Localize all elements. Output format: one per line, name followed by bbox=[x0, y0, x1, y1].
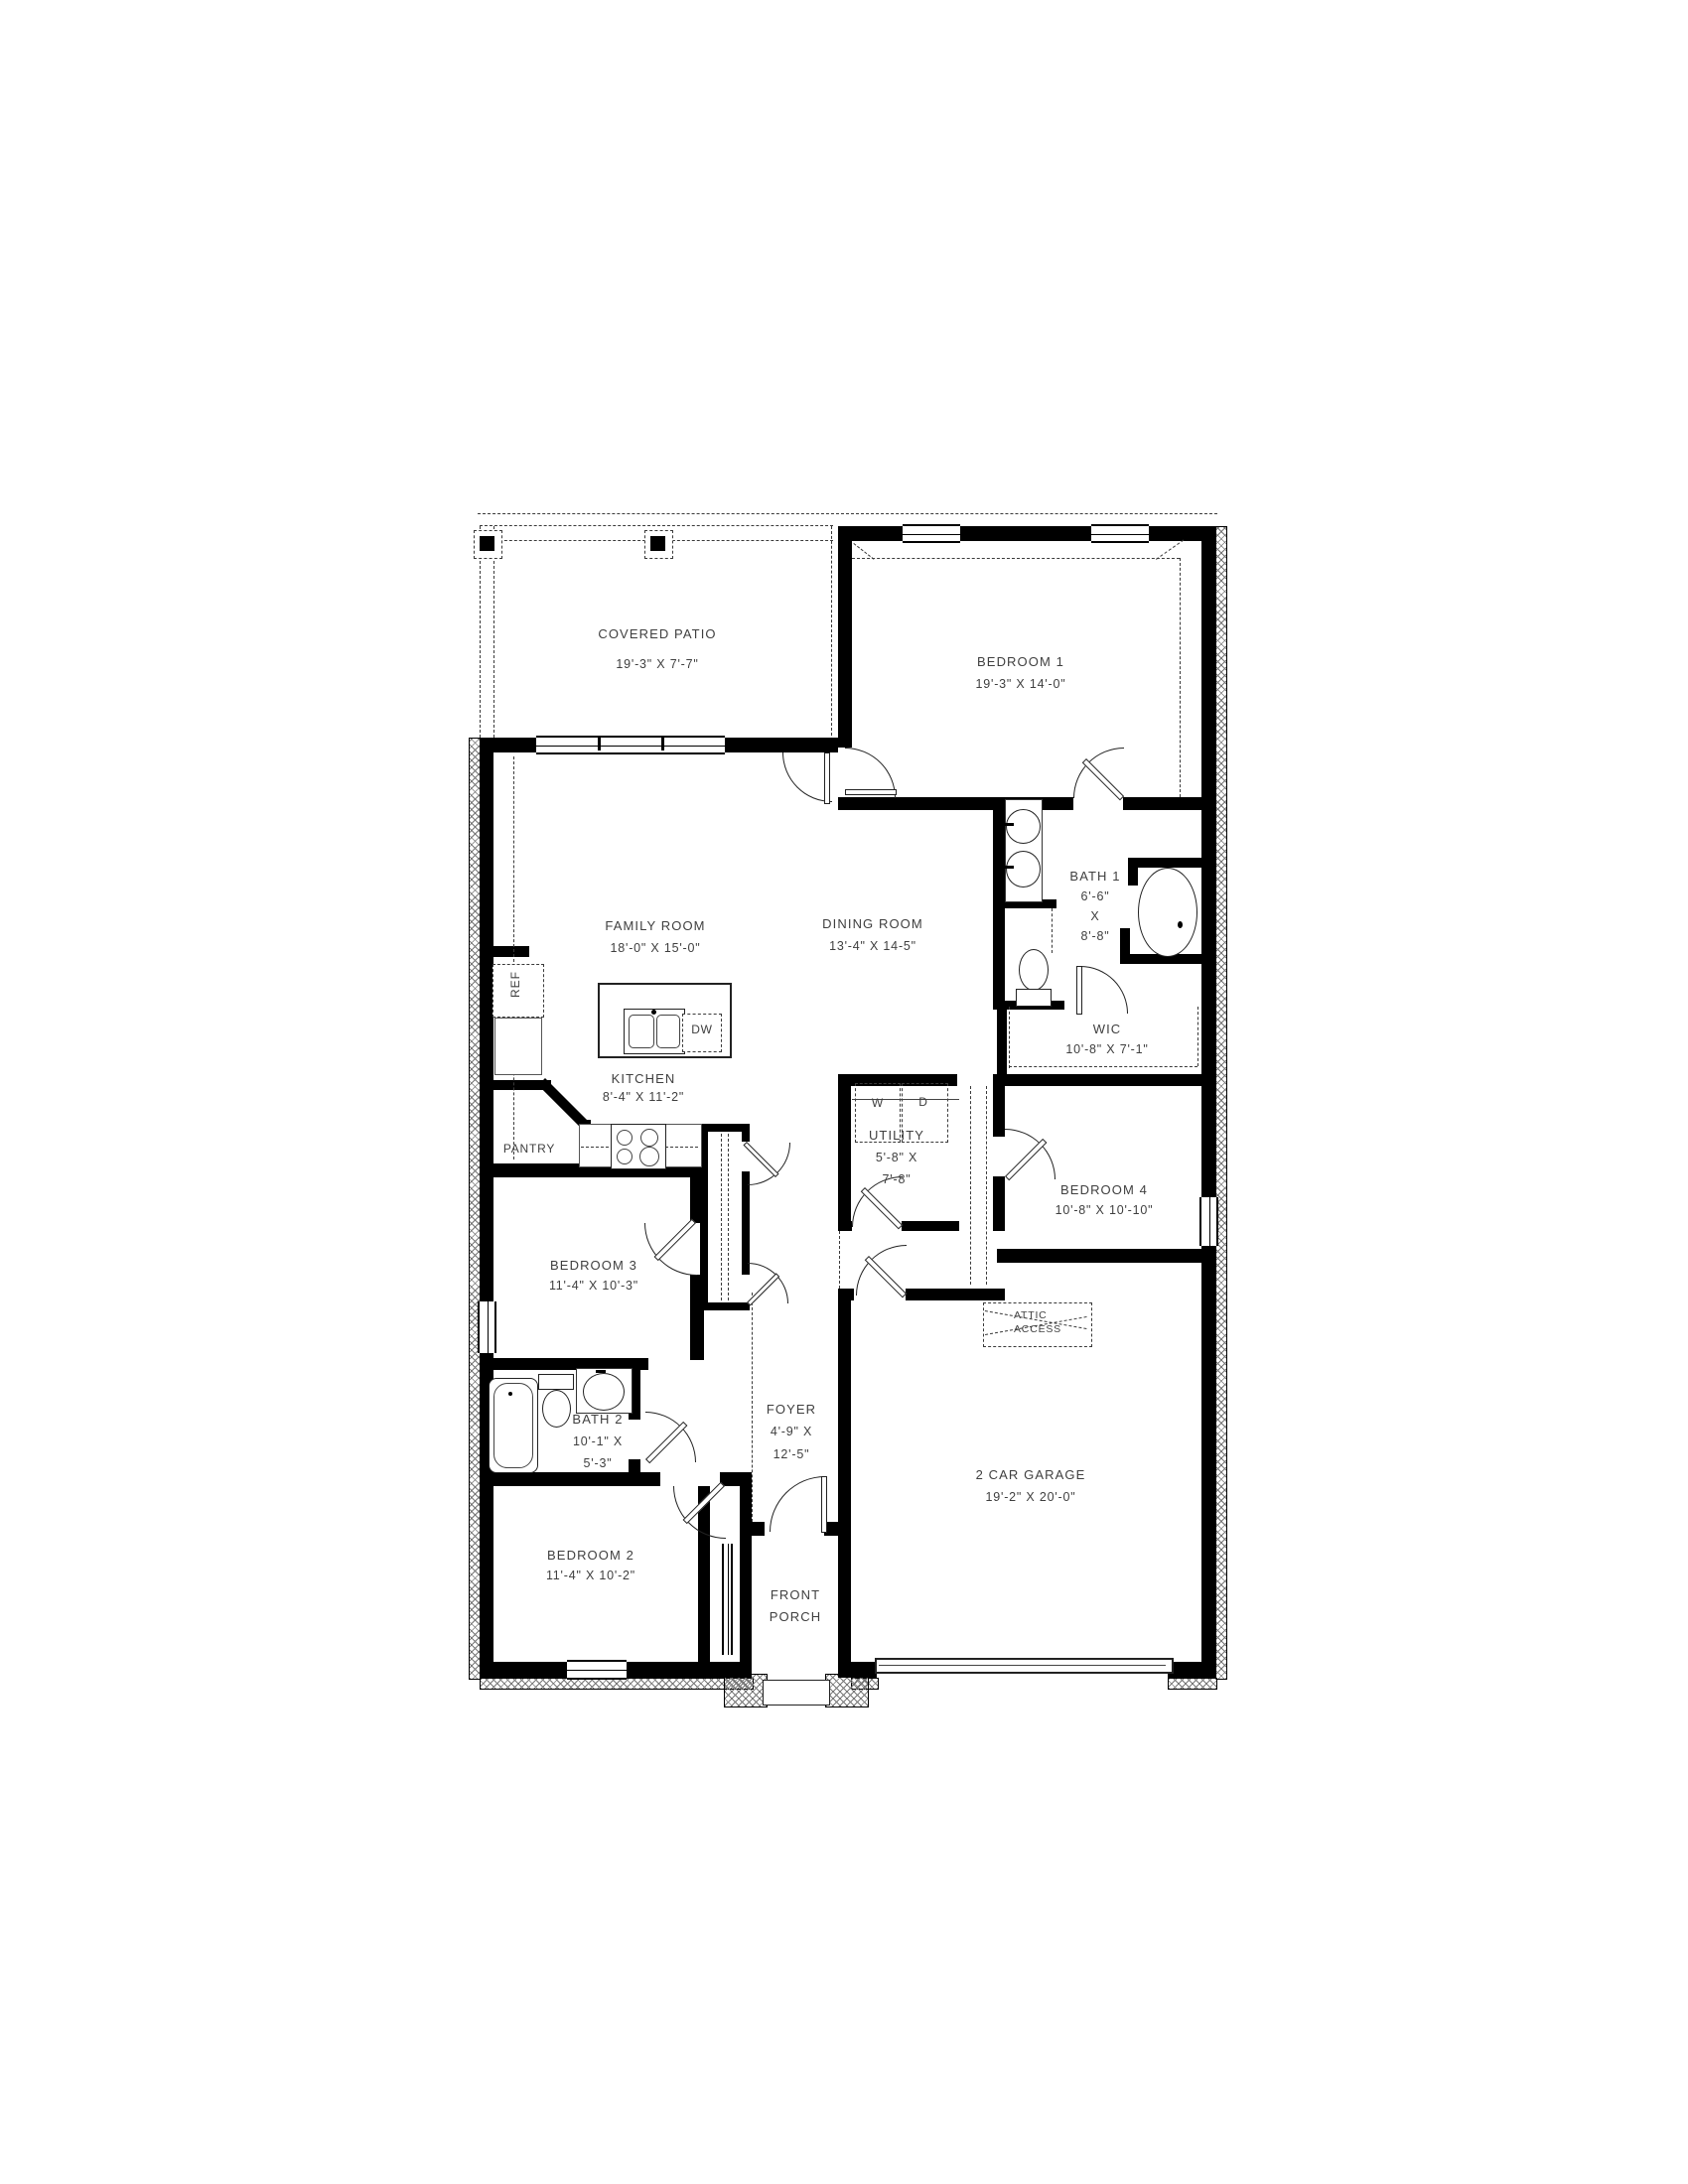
closet-shelf bbox=[728, 1134, 729, 1300]
wall bbox=[993, 1074, 1005, 1137]
window-mullion bbox=[661, 736, 664, 751]
faucet bbox=[1005, 823, 1014, 826]
front-door-arc bbox=[770, 1476, 825, 1532]
toilet-bowl bbox=[542, 1390, 571, 1428]
sidelight-window bbox=[722, 1544, 733, 1655]
wall bbox=[740, 1522, 765, 1536]
vanity-sink bbox=[583, 1373, 625, 1411]
room-label-covered-patio: COVERED PATIO19'-3" X 7'-7" bbox=[598, 619, 716, 679]
faucet bbox=[651, 1010, 656, 1015]
wall bbox=[851, 1662, 877, 1678]
wall bbox=[906, 1289, 1005, 1300]
tray-ceiling-corner bbox=[1156, 539, 1184, 559]
closet-shelf bbox=[721, 1134, 722, 1300]
garage-door-line bbox=[879, 1665, 1166, 1666]
room-label-bedroom-2: BEDROOM 211'-4" X 10'-2" bbox=[546, 1545, 635, 1586]
wall bbox=[720, 1472, 752, 1486]
wall bbox=[1128, 858, 1215, 868]
burner bbox=[617, 1130, 633, 1146]
patio-outline bbox=[480, 525, 833, 526]
wall bbox=[838, 1074, 851, 1231]
wall bbox=[838, 526, 1215, 541]
window bbox=[1091, 524, 1149, 543]
tub-drain bbox=[508, 1392, 512, 1396]
porch-column bbox=[724, 1674, 768, 1707]
window bbox=[567, 1660, 627, 1680]
room-label-bedroom-3: BEDROOM 311'-4" X 10'-3" bbox=[549, 1255, 638, 1297]
room-label-bath-2: BATH 210'-1" X 5'-3" bbox=[572, 1409, 623, 1474]
wall bbox=[838, 1289, 851, 1678]
patio-post bbox=[650, 536, 665, 551]
vanity-sink bbox=[1006, 851, 1041, 887]
room-label-family-room: FAMILY ROOM18'-0" X 15'-0" bbox=[605, 915, 705, 959]
wall bbox=[902, 1221, 959, 1231]
wic-shelf bbox=[1009, 1007, 1010, 1068]
wic-shelf bbox=[1009, 1066, 1197, 1067]
wall bbox=[997, 1249, 1215, 1263]
floor-plan-sheet: COVERED PATIO19'-3" X 7'-7" BEDROOM 119'… bbox=[0, 0, 1688, 2184]
sink-basin bbox=[629, 1015, 654, 1048]
wall bbox=[1201, 526, 1215, 1678]
patio-post bbox=[480, 536, 494, 551]
window bbox=[478, 1301, 496, 1353]
exterior-wall-hatch bbox=[1215, 526, 1227, 1680]
garage-door bbox=[875, 1658, 1174, 1674]
tub-drain bbox=[1178, 921, 1183, 928]
door-arc bbox=[1080, 966, 1128, 1014]
wall bbox=[742, 1171, 750, 1275]
room-label-wic: WIC10'-8" X 7'-1" bbox=[1065, 1019, 1148, 1060]
faucet bbox=[596, 1370, 606, 1373]
dishwasher-label: DW bbox=[691, 1023, 713, 1036]
exterior-wall-hatch bbox=[1168, 1678, 1217, 1690]
room-label-kitchen: KITCHEN8'-4" X 11'-2" bbox=[603, 1069, 684, 1107]
room-label-utility: UTILITY5'-8" X 7'-8" bbox=[869, 1125, 924, 1190]
foyer-boundary bbox=[752, 1293, 753, 1522]
washer-label: W bbox=[872, 1096, 884, 1110]
tray-ceiling bbox=[1180, 558, 1181, 797]
wall bbox=[838, 526, 852, 748]
room-label-bedroom-4: BEDROOM 410'-8" X 10'-10" bbox=[1055, 1179, 1154, 1221]
window bbox=[1199, 1197, 1218, 1246]
window bbox=[903, 524, 960, 543]
wall bbox=[838, 1221, 852, 1231]
wall bbox=[490, 946, 529, 957]
room-label-dining-room: DINING ROOM13'-4" X 14-5" bbox=[822, 913, 923, 957]
faucet bbox=[1005, 866, 1014, 869]
front-door-leaf bbox=[821, 1476, 827, 1533]
wall bbox=[997, 1074, 1215, 1086]
porch-step bbox=[763, 1680, 830, 1706]
room-label-bath-1: BATH 16'-6" X8'-8" bbox=[1069, 867, 1120, 946]
burner bbox=[617, 1149, 633, 1164]
wall bbox=[1128, 858, 1138, 886]
burner bbox=[640, 1129, 658, 1147]
toilet-door bbox=[1052, 908, 1053, 953]
porch-column bbox=[825, 1674, 869, 1707]
wall bbox=[1123, 797, 1215, 810]
counter-line bbox=[513, 756, 514, 1160]
wall bbox=[993, 1176, 1005, 1231]
door-arc bbox=[673, 1486, 726, 1539]
toilet-bowl bbox=[1019, 949, 1049, 991]
wall bbox=[742, 1124, 750, 1142]
ceiling-break bbox=[970, 1086, 971, 1285]
wall bbox=[824, 1522, 851, 1536]
tray-ceiling bbox=[852, 558, 1180, 559]
door-leaf bbox=[824, 752, 830, 804]
attic-access-label: ATTICACCESS bbox=[1014, 1308, 1061, 1336]
wall bbox=[1120, 928, 1130, 964]
burner bbox=[639, 1147, 659, 1166]
window-mullion bbox=[598, 736, 601, 751]
hall-boundary bbox=[839, 1231, 840, 1289]
ceiling-break bbox=[986, 1086, 987, 1285]
wall bbox=[480, 1472, 660, 1486]
toilet-tank bbox=[1016, 989, 1052, 1007]
dryer-label: D bbox=[918, 1095, 927, 1109]
room-label-foyer: FOYER4'-9" X 12'-5" bbox=[767, 1398, 816, 1466]
toilet-tank bbox=[538, 1374, 574, 1390]
roof-line bbox=[478, 513, 1217, 514]
patio-outline bbox=[831, 526, 832, 736]
wall bbox=[1168, 1662, 1215, 1678]
wall bbox=[740, 1486, 752, 1678]
utility-counter-line bbox=[852, 1099, 959, 1100]
door-leaf bbox=[1076, 966, 1082, 1015]
wic-shelf bbox=[1197, 1007, 1198, 1066]
cabinet bbox=[494, 1018, 542, 1075]
room-label-bedroom-1: BEDROOM 119'-3" X 14'-0" bbox=[976, 651, 1066, 695]
pantry-label: PANTRY bbox=[503, 1142, 555, 1156]
refrigerator-label: REF bbox=[508, 971, 522, 998]
bathtub-inner bbox=[493, 1383, 533, 1468]
wall bbox=[480, 738, 493, 1303]
wall bbox=[700, 1302, 750, 1310]
door-leaf bbox=[845, 789, 897, 795]
vanity-sink bbox=[1006, 809, 1041, 844]
sink-basin bbox=[656, 1015, 680, 1048]
door-arc bbox=[644, 1223, 697, 1276]
bathtub bbox=[1138, 868, 1197, 957]
room-label-garage: 2 CAR GARAGE19'-2" X 20'-0" bbox=[976, 1463, 1086, 1509]
room-label-front-porch: FRONTPORCH bbox=[770, 1584, 821, 1628]
window bbox=[536, 736, 725, 754]
